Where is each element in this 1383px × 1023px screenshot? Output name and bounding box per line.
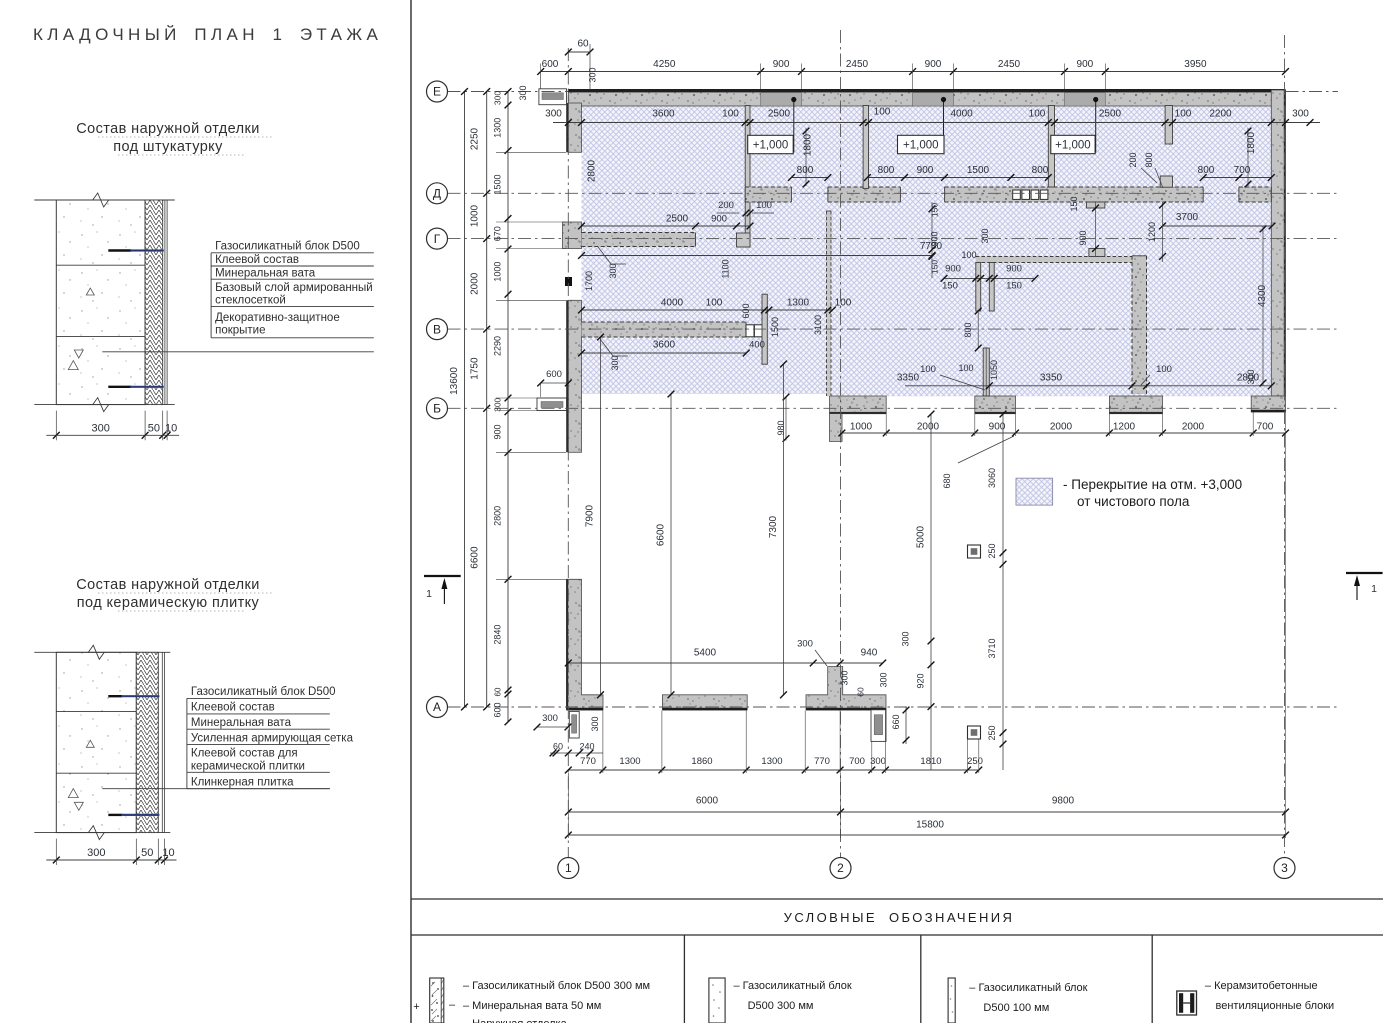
svg-text:2000: 2000 xyxy=(1050,422,1073,433)
svg-text:– Наружная отделка: – Наружная отделка xyxy=(463,1018,568,1023)
svg-text:300: 300 xyxy=(608,263,618,278)
svg-text:1000: 1000 xyxy=(470,204,481,227)
svg-text:400: 400 xyxy=(749,340,765,351)
svg-text:900: 900 xyxy=(1077,59,1094,70)
svg-text:2250: 2250 xyxy=(470,127,481,150)
svg-text:300: 300 xyxy=(590,716,600,731)
svg-text:700: 700 xyxy=(1234,165,1251,176)
svg-text:1100: 1100 xyxy=(721,259,731,278)
svg-text:900: 900 xyxy=(925,59,942,70)
svg-text:1000: 1000 xyxy=(493,262,503,282)
svg-text:1810: 1810 xyxy=(920,756,941,767)
svg-text:250: 250 xyxy=(967,756,983,767)
svg-text:– Газосиликатный блок: – Газосиликатный блок xyxy=(734,980,852,992)
svg-text:1: 1 xyxy=(565,861,572,875)
svg-text:– Минеральная вата 50 мм: – Минеральная вата 50 мм xyxy=(463,1000,601,1012)
svg-text:3350: 3350 xyxy=(897,373,920,384)
svg-text:Газосиликатный блок D500: Газосиликатный блок D500 xyxy=(191,686,336,698)
svg-text:2290: 2290 xyxy=(493,336,503,356)
svg-text:4000: 4000 xyxy=(950,109,973,120)
svg-text:В: В xyxy=(433,322,441,336)
svg-text:60: 60 xyxy=(577,39,589,50)
svg-text:250: 250 xyxy=(987,725,997,740)
svg-text:770: 770 xyxy=(580,756,596,767)
svg-text:6600: 6600 xyxy=(656,523,667,546)
svg-text:вентиляционные блоки: вентиляционные блоки xyxy=(1216,1000,1335,1012)
svg-text:150: 150 xyxy=(1006,281,1022,292)
svg-text:980: 980 xyxy=(776,420,786,435)
svg-text:1500: 1500 xyxy=(770,317,780,337)
svg-text:900: 900 xyxy=(773,59,790,70)
svg-text:– Газосиликатный блок D500 30: – Газосиликатный блок D500 300 мм xyxy=(463,980,650,992)
svg-text:Состав наружной отделки: Состав наружной отделки xyxy=(76,577,259,593)
svg-text:Газосиликатный блок D500: Газосиликатный блок D500 xyxy=(215,241,360,253)
svg-text:300: 300 xyxy=(1246,369,1256,384)
svg-text:9800: 9800 xyxy=(1052,796,1075,807)
svg-text:1000: 1000 xyxy=(850,422,873,433)
svg-text:300: 300 xyxy=(518,85,528,100)
svg-text:1050: 1050 xyxy=(989,360,999,380)
svg-text:3950: 3950 xyxy=(1184,59,1207,70)
svg-text:900: 900 xyxy=(917,165,934,176)
svg-text:+1,000: +1,000 xyxy=(753,140,789,152)
svg-text:3600: 3600 xyxy=(652,109,675,120)
svg-text:2500: 2500 xyxy=(768,109,791,120)
svg-text:800: 800 xyxy=(878,165,895,176)
svg-text:3350: 3350 xyxy=(1040,373,1063,384)
svg-text:900: 900 xyxy=(930,231,940,246)
svg-text:800: 800 xyxy=(1198,165,1215,176)
svg-text:3700: 3700 xyxy=(1176,212,1199,223)
svg-text:под керамическую плитку: под керамическую плитку xyxy=(77,595,260,611)
svg-text:300: 300 xyxy=(542,713,558,724)
svg-text:300: 300 xyxy=(1292,109,1309,120)
svg-text:3060: 3060 xyxy=(987,468,997,488)
svg-text:150: 150 xyxy=(1069,196,1079,211)
svg-text:100: 100 xyxy=(1175,109,1192,120)
svg-text:1750: 1750 xyxy=(470,357,481,380)
svg-text:2500: 2500 xyxy=(1099,109,1122,120)
svg-text:800: 800 xyxy=(963,322,973,337)
svg-text:КЛАДОЧНЫЙ ПЛАН 1 ЭТАЖА: КЛАДОЧНЫЙ ПЛАН 1 ЭТАЖА xyxy=(33,25,382,44)
svg-text:2450: 2450 xyxy=(998,59,1021,70)
svg-text:13600: 13600 xyxy=(449,367,460,395)
svg-text:Г: Г xyxy=(434,232,441,246)
svg-text:6600: 6600 xyxy=(470,546,481,569)
svg-text:900: 900 xyxy=(711,214,727,225)
svg-text:– Газосиликатный блок: – Газосиликатный блок xyxy=(969,982,1087,994)
svg-text:1860: 1860 xyxy=(691,756,712,767)
svg-text:2800: 2800 xyxy=(587,159,598,182)
svg-text:920: 920 xyxy=(916,673,926,688)
svg-text:10: 10 xyxy=(162,847,174,859)
svg-text:3: 3 xyxy=(1281,861,1288,875)
svg-text:300: 300 xyxy=(610,355,620,370)
svg-text:D500 100 мм: D500 100 мм xyxy=(983,1002,1049,1014)
svg-text:1700: 1700 xyxy=(584,271,594,291)
svg-text:УСЛОВНЫЕ ОБОЗНАЧЕНИЯ: УСЛОВНЫЕ ОБОЗНАЧЕНИЯ xyxy=(784,910,1015,925)
svg-text:2800: 2800 xyxy=(493,506,503,526)
svg-text:300: 300 xyxy=(879,672,889,687)
svg-text:660: 660 xyxy=(891,714,901,729)
svg-text:Минеральная вата: Минеральная вата xyxy=(215,268,316,280)
svg-text:3710: 3710 xyxy=(987,638,997,658)
svg-text:250: 250 xyxy=(987,543,997,558)
svg-text:2000: 2000 xyxy=(470,272,481,295)
svg-text:покрытие: покрытие xyxy=(215,325,265,337)
svg-text:300: 300 xyxy=(870,756,886,767)
svg-text:100: 100 xyxy=(1156,364,1172,375)
svg-text:Клеевой состав: Клеевой состав xyxy=(191,702,275,714)
svg-text:Усиленная армирующая сетка: Усиленная армирующая сетка xyxy=(191,732,354,744)
svg-text:100: 100 xyxy=(706,298,723,309)
svg-text:1800: 1800 xyxy=(803,133,814,156)
svg-text:1200: 1200 xyxy=(1113,422,1136,433)
svg-text:Клеевой состав: Клеевой состав xyxy=(215,254,299,266)
svg-text:1300: 1300 xyxy=(619,756,640,767)
svg-text:+1,000: +1,000 xyxy=(903,140,939,152)
svg-text:1500: 1500 xyxy=(493,174,503,194)
svg-text:А: А xyxy=(433,700,441,714)
svg-text:от чистового пола: от чистового пола xyxy=(1077,494,1190,509)
svg-text:15800: 15800 xyxy=(916,820,944,831)
svg-text:1300: 1300 xyxy=(493,118,503,138)
svg-text:800: 800 xyxy=(797,165,814,176)
svg-text:300: 300 xyxy=(493,397,503,411)
svg-text:150: 150 xyxy=(930,203,940,217)
svg-text:60: 60 xyxy=(494,687,503,696)
svg-text:700: 700 xyxy=(1257,422,1274,433)
svg-text:+: + xyxy=(413,1001,419,1013)
svg-text:- Перекрытие на отм. +3,000: - Перекрытие на отм. +3,000 xyxy=(1063,477,1242,492)
svg-text:600: 600 xyxy=(542,59,559,70)
svg-text:300: 300 xyxy=(901,631,911,646)
svg-text:900: 900 xyxy=(1078,230,1088,245)
svg-text:1300: 1300 xyxy=(761,756,782,767)
svg-text:300: 300 xyxy=(87,847,105,859)
svg-text:10: 10 xyxy=(165,422,177,434)
svg-text:150: 150 xyxy=(942,281,958,292)
svg-text:7900: 7900 xyxy=(585,504,596,527)
svg-text:Состав наружной отделки: Состав наружной отделки xyxy=(76,121,259,137)
svg-text:200: 200 xyxy=(1128,152,1138,167)
svg-text:4250: 4250 xyxy=(653,59,676,70)
svg-text:900: 900 xyxy=(1006,264,1022,275)
svg-text:2500: 2500 xyxy=(666,214,689,225)
svg-text:4300: 4300 xyxy=(1257,284,1268,307)
svg-text:6000: 6000 xyxy=(696,796,719,807)
svg-text:800: 800 xyxy=(1144,152,1154,167)
svg-text:940: 940 xyxy=(861,648,878,659)
svg-text:Базовый слой армированный: Базовый слой армированный xyxy=(215,282,373,294)
svg-text:300: 300 xyxy=(92,422,110,434)
svg-text:3100: 3100 xyxy=(813,315,823,335)
svg-text:1500: 1500 xyxy=(967,165,990,176)
svg-text:Клинкерная плитка: Клинкерная плитка xyxy=(191,776,294,788)
svg-text:300: 300 xyxy=(588,67,598,82)
svg-text:2000: 2000 xyxy=(917,422,940,433)
svg-text:Клеевой состав для: Клеевой состав для xyxy=(191,748,298,760)
svg-text:670: 670 xyxy=(493,226,503,241)
svg-text:Минеральная вата: Минеральная вата xyxy=(191,717,292,729)
svg-text:150: 150 xyxy=(930,260,940,274)
svg-text:Е: Е xyxy=(433,85,441,99)
svg-text:600: 600 xyxy=(741,303,751,318)
svg-text:300: 300 xyxy=(493,91,503,105)
svg-text:2: 2 xyxy=(837,861,844,875)
svg-text:100: 100 xyxy=(722,109,739,120)
svg-text:2000: 2000 xyxy=(1182,422,1205,433)
svg-text:1: 1 xyxy=(426,588,432,600)
svg-text:60: 60 xyxy=(553,742,563,752)
svg-text:4000: 4000 xyxy=(661,298,684,309)
svg-text:7300: 7300 xyxy=(768,515,779,538)
svg-text:+1,000: +1,000 xyxy=(1055,140,1091,152)
svg-text:50: 50 xyxy=(141,847,153,859)
svg-text:D500 300 мм: D500 300 мм xyxy=(748,1000,814,1012)
svg-text:60: 60 xyxy=(856,687,866,697)
svg-text:2840: 2840 xyxy=(493,625,503,645)
svg-text:1: 1 xyxy=(1371,583,1377,595)
svg-text:100: 100 xyxy=(958,363,973,373)
svg-text:100: 100 xyxy=(874,107,891,118)
svg-text:50: 50 xyxy=(148,422,160,434)
svg-text:5400: 5400 xyxy=(694,648,717,659)
svg-text:100: 100 xyxy=(756,200,772,211)
svg-text:1200: 1200 xyxy=(1147,222,1157,242)
svg-text:100: 100 xyxy=(961,250,976,260)
svg-text:1300: 1300 xyxy=(787,298,810,309)
svg-text:Б: Б xyxy=(433,402,441,416)
svg-text:700: 700 xyxy=(849,756,865,767)
svg-text:200: 200 xyxy=(718,200,734,211)
svg-text:600: 600 xyxy=(546,369,562,380)
svg-text:Д: Д xyxy=(433,187,441,201)
svg-text:5000: 5000 xyxy=(916,525,927,548)
svg-text:900: 900 xyxy=(493,424,503,439)
svg-text:900: 900 xyxy=(945,264,961,275)
svg-text:–: – xyxy=(449,999,456,1011)
svg-text:стеклосеткой: стеклосеткой xyxy=(215,294,286,306)
svg-text:300: 300 xyxy=(545,109,562,120)
svg-text:под штукатурку: под штукатурку xyxy=(113,139,223,155)
svg-text:100: 100 xyxy=(1029,109,1046,120)
svg-text:600: 600 xyxy=(493,702,503,717)
svg-text:800: 800 xyxy=(1032,165,1049,176)
svg-text:керамической плитки: керамической плитки xyxy=(191,760,305,772)
svg-text:100: 100 xyxy=(835,298,852,309)
svg-text:300: 300 xyxy=(840,670,850,685)
svg-text:3600: 3600 xyxy=(653,340,676,351)
svg-text:300: 300 xyxy=(980,228,990,243)
svg-text:Декоративно-защитное: Декоративно-защитное xyxy=(215,312,340,324)
svg-text:680: 680 xyxy=(942,473,952,488)
svg-text:300: 300 xyxy=(797,639,813,650)
svg-text:– Керамзитобетонные: – Керамзитобетонные xyxy=(1205,980,1318,992)
svg-text:2200: 2200 xyxy=(1209,109,1232,120)
svg-text:2450: 2450 xyxy=(846,59,869,70)
svg-text:100: 100 xyxy=(920,364,936,375)
svg-text:770: 770 xyxy=(814,756,830,767)
